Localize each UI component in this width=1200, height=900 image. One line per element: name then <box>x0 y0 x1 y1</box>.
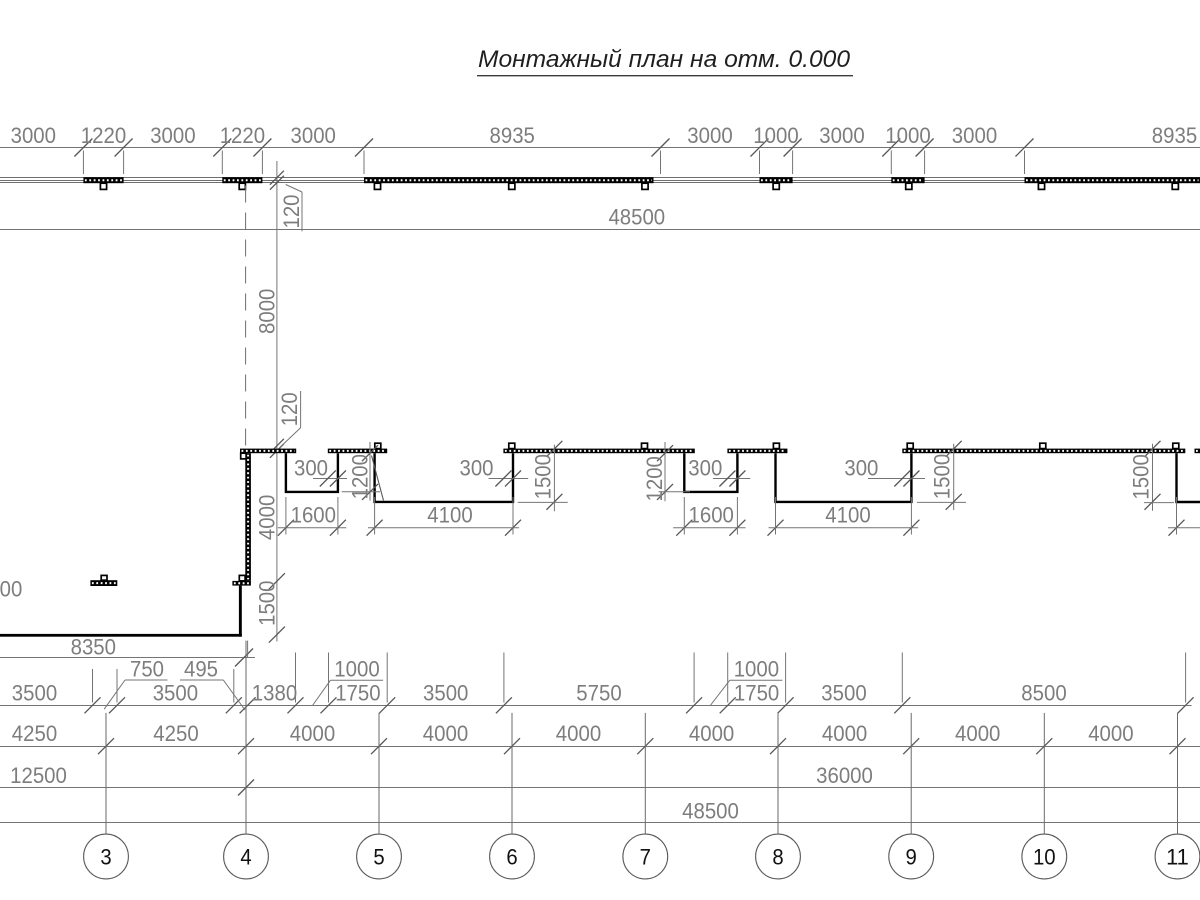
svg-text:3000: 3000 <box>952 123 997 148</box>
svg-text:8000: 8000 <box>255 289 280 334</box>
svg-text:1000: 1000 <box>753 123 798 148</box>
svg-text:1220: 1220 <box>220 123 265 148</box>
svg-text:1750: 1750 <box>734 681 779 706</box>
svg-text:120: 120 <box>277 392 302 426</box>
svg-text:12500: 12500 <box>10 763 67 788</box>
svg-text:1500: 1500 <box>930 454 955 499</box>
svg-text:5: 5 <box>373 844 384 869</box>
svg-text:4250: 4250 <box>153 721 198 746</box>
svg-text:8935: 8935 <box>490 123 535 148</box>
svg-text:11: 11 <box>1166 844 1189 869</box>
svg-text:8500: 8500 <box>1021 681 1066 706</box>
svg-text:1500: 1500 <box>531 454 556 499</box>
svg-text:36000: 36000 <box>816 763 873 788</box>
svg-text:300: 300 <box>294 456 328 481</box>
svg-text:3000: 3000 <box>291 123 336 148</box>
svg-text:4000: 4000 <box>955 721 1000 746</box>
svg-text:1000: 1000 <box>734 656 779 681</box>
svg-text:3500: 3500 <box>153 681 198 706</box>
svg-text:495: 495 <box>184 656 218 681</box>
svg-text:3500: 3500 <box>12 681 57 706</box>
svg-text:4000: 4000 <box>822 721 867 746</box>
svg-text:8: 8 <box>772 844 783 869</box>
svg-text:4000: 4000 <box>689 721 734 746</box>
svg-text:4250: 4250 <box>12 721 57 746</box>
svg-text:1000: 1000 <box>885 123 930 148</box>
svg-text:3000: 3000 <box>687 123 732 148</box>
svg-text:3000: 3000 <box>11 123 56 148</box>
svg-text:5750: 5750 <box>576 681 621 706</box>
svg-text:4000: 4000 <box>556 721 601 746</box>
svg-text:1600: 1600 <box>291 503 336 528</box>
svg-text:300: 300 <box>0 577 22 602</box>
svg-text:300: 300 <box>460 456 494 481</box>
svg-text:8350: 8350 <box>71 634 116 659</box>
svg-text:1220: 1220 <box>81 123 126 148</box>
svg-text:3: 3 <box>100 844 111 869</box>
svg-text:750: 750 <box>130 656 164 681</box>
svg-text:4000: 4000 <box>290 721 335 746</box>
svg-text:48500: 48500 <box>608 205 665 230</box>
svg-text:1600: 1600 <box>689 503 734 528</box>
svg-text:7: 7 <box>640 844 651 869</box>
svg-text:3500: 3500 <box>821 681 866 706</box>
svg-text:6: 6 <box>506 844 517 869</box>
svg-text:1500: 1500 <box>255 581 280 626</box>
svg-text:4000: 4000 <box>255 495 280 540</box>
svg-text:120: 120 <box>279 195 304 229</box>
svg-text:Монтажный план на отм. 0.000: Монтажный план на отм. 0.000 <box>478 46 850 73</box>
svg-text:4: 4 <box>240 844 251 869</box>
svg-text:9: 9 <box>906 844 917 869</box>
svg-text:4100: 4100 <box>825 503 870 528</box>
svg-text:1200: 1200 <box>348 454 373 499</box>
svg-text:1750: 1750 <box>335 681 380 706</box>
svg-text:3500: 3500 <box>423 681 468 706</box>
svg-text:300: 300 <box>688 456 722 481</box>
svg-text:3000: 3000 <box>819 123 864 148</box>
svg-text:3000: 3000 <box>150 123 195 148</box>
svg-text:4000: 4000 <box>1088 721 1133 746</box>
svg-text:1380: 1380 <box>252 681 297 706</box>
svg-text:4100: 4100 <box>427 503 472 528</box>
svg-text:8935: 8935 <box>1152 123 1197 148</box>
svg-text:4000: 4000 <box>423 721 468 746</box>
svg-text:10: 10 <box>1033 844 1056 869</box>
svg-text:1000: 1000 <box>334 656 379 681</box>
svg-text:300: 300 <box>844 456 878 481</box>
svg-text:1500: 1500 <box>1129 454 1154 499</box>
svg-text:1200: 1200 <box>642 456 667 501</box>
svg-text:48500: 48500 <box>682 799 739 824</box>
